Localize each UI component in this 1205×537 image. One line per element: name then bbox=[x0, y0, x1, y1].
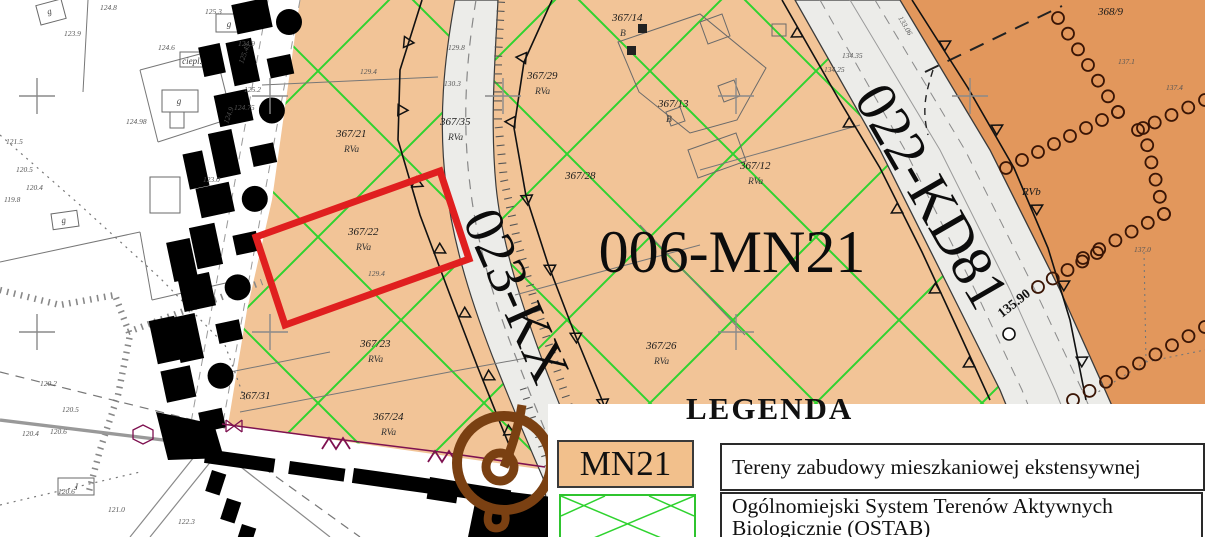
parcel-line bbox=[83, 0, 88, 92]
band-building bbox=[215, 319, 243, 344]
soil-class-label: RVa bbox=[653, 357, 669, 367]
parcel-label: 367/28 bbox=[564, 170, 596, 182]
parcel-label: 367/24 bbox=[372, 411, 404, 423]
building-label: ciepl. bbox=[182, 56, 202, 66]
legend-swatch-ostab bbox=[559, 494, 696, 537]
band-building bbox=[231, 0, 272, 34]
parcel-label: 367/29 bbox=[526, 70, 558, 82]
spot-height: 137.1 bbox=[1118, 57, 1135, 66]
band-building bbox=[205, 470, 226, 496]
building-label: g bbox=[61, 215, 67, 226]
spot-height: 125.2 bbox=[244, 85, 261, 94]
band-building bbox=[427, 477, 460, 503]
parcel-label: 367/22 bbox=[347, 226, 379, 238]
spot-height: 134.35 bbox=[842, 51, 863, 60]
spot-height: 120.6 bbox=[50, 427, 67, 436]
spot-height: 137.0 bbox=[1134, 245, 1151, 254]
building-label: g bbox=[227, 19, 232, 29]
spot-height: 121.0 bbox=[108, 505, 125, 514]
spot-height: 123.0 bbox=[203, 175, 220, 184]
legend-title: LEGENDA bbox=[686, 391, 853, 427]
soil-class-label: RVa bbox=[355, 243, 371, 253]
ostab-swatch-pattern bbox=[561, 496, 694, 537]
parcel-label: 368/9 bbox=[1097, 6, 1124, 18]
parcel-label: 367/21 bbox=[335, 128, 367, 140]
spot-height: 120.4 bbox=[22, 429, 39, 438]
soil-class-label: B bbox=[666, 115, 672, 125]
parcel-label: 367/35 bbox=[439, 116, 471, 128]
legend-swatch-mn21: MN21 bbox=[557, 440, 694, 488]
parcel-label: 367/14 bbox=[611, 12, 643, 24]
soil-class-label: RVa bbox=[534, 87, 550, 97]
spot-height: 120.5 bbox=[16, 165, 33, 174]
spot-height: 134.25 bbox=[824, 65, 845, 74]
tree-circle bbox=[208, 363, 234, 389]
band-building bbox=[198, 43, 226, 77]
spot-height: 123.9 bbox=[64, 29, 81, 38]
parcel-label: 367/23 bbox=[359, 338, 391, 350]
band-building bbox=[160, 365, 196, 403]
spot-height: 124.98 bbox=[126, 117, 147, 126]
parcel-label: 367/13 bbox=[657, 98, 689, 110]
band-building bbox=[250, 142, 278, 167]
soil-class-label: RVa bbox=[343, 145, 359, 155]
spot-height: 129.8 bbox=[448, 43, 465, 52]
parcel-label: RVb bbox=[1021, 186, 1041, 198]
soil-class-label: B bbox=[620, 29, 626, 39]
soil-class-label: RVa bbox=[447, 133, 463, 143]
building-label: g bbox=[46, 6, 53, 17]
tree-circle bbox=[259, 97, 285, 123]
spot-height: 124.75 bbox=[234, 103, 255, 112]
legend-swatch-mn21-code: MN21 bbox=[580, 444, 671, 484]
soil-class-label: RVa bbox=[380, 428, 396, 438]
building-label: J bbox=[74, 482, 79, 492]
spot-height: 121.5 bbox=[6, 137, 23, 146]
legend-item-mn21-desc: Tereny zabudowy mieszkaniowej ekstensywn… bbox=[720, 443, 1205, 491]
legend-item-ostab-desc: Ogólnomiejski System Terenów Aktywnych B… bbox=[720, 492, 1203, 537]
spot-height: 130.3 bbox=[444, 79, 461, 88]
parcel-line bbox=[140, 70, 158, 142]
spot-height: 120.6 bbox=[58, 487, 75, 496]
spot-height: 120.4 bbox=[26, 183, 43, 192]
spot-height: 125.3 bbox=[205, 7, 222, 16]
legend-ostab-desc-text: Ogólnomiejski System Terenów Aktywnych B… bbox=[732, 495, 1191, 537]
spot-height: 124.8 bbox=[100, 3, 117, 12]
zone-label-mn21: 006-MN21 bbox=[599, 219, 866, 285]
band-building bbox=[220, 498, 241, 524]
tree-circle bbox=[276, 9, 302, 35]
band-building bbox=[352, 468, 437, 495]
spot-height: 129.4 bbox=[360, 67, 377, 76]
band-building bbox=[208, 129, 241, 179]
spot-height: 129.4 bbox=[368, 269, 385, 278]
spot-height: 124.6 bbox=[158, 43, 175, 52]
band-building bbox=[235, 524, 256, 537]
tree-circle bbox=[225, 274, 251, 300]
soil-class-label: RVa bbox=[367, 355, 383, 365]
spot-height: 137.4 bbox=[1166, 83, 1183, 92]
parcel-label: 367/26 bbox=[645, 340, 677, 352]
spot-height: 120.2 bbox=[40, 379, 57, 388]
legend-mn21-desc-text: Tereny zabudowy mieszkaniowej ekstensywn… bbox=[732, 456, 1141, 478]
spot-height: 119.8 bbox=[4, 195, 21, 204]
legend-panel: LEGENDA MN21 Tereny zabudowy mieszkaniow… bbox=[548, 404, 1205, 537]
parcel-label: 367/12 bbox=[739, 160, 771, 172]
building-label: g bbox=[177, 96, 182, 106]
band-building bbox=[288, 461, 345, 482]
spot-height: 120.5 bbox=[62, 405, 79, 414]
tree-circle bbox=[242, 186, 268, 212]
parcel-line bbox=[0, 232, 140, 262]
spot-height: 122.3 bbox=[178, 517, 195, 526]
zoning-map-screenshot: 006-MN21 022-KD81 023-KX 135.90 367/14B3… bbox=[0, 0, 1205, 537]
parcel-label: 367/31 bbox=[239, 390, 271, 402]
soil-class-label: RVa bbox=[747, 177, 763, 187]
